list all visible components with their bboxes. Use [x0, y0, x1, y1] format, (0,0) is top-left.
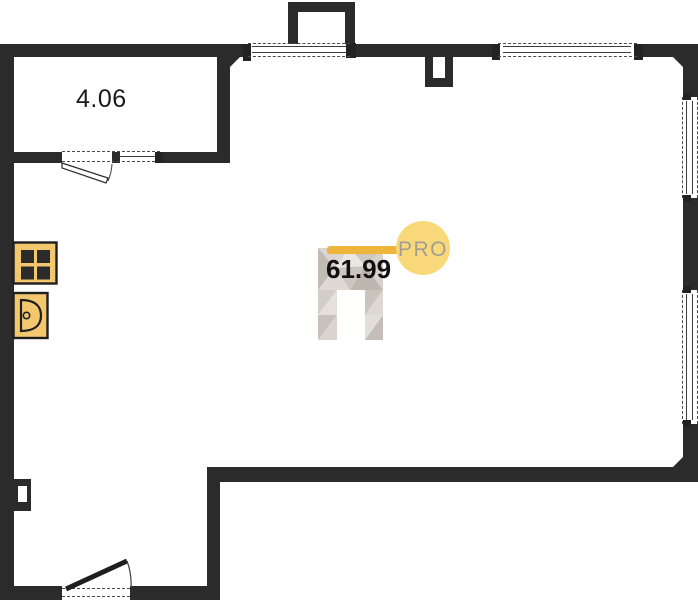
- chamfer-bottom-right: [673, 457, 683, 467]
- sink-icon: [14, 293, 48, 338]
- chamfer-room406-corner: [230, 57, 240, 67]
- watermark-pro-text: PRO: [398, 238, 448, 261]
- entrance-door: [66, 561, 131, 589]
- main-room-area-label: 61.99: [326, 254, 391, 285]
- room406-area-label: 4.06: [76, 85, 127, 114]
- chamfer-top-right: [673, 57, 683, 67]
- watermark-bar: [327, 246, 405, 254]
- floor-plan: PRO 4.06 61.99: [0, 0, 698, 600]
- stove-icon: [14, 243, 57, 284]
- room406-door: [62, 163, 112, 183]
